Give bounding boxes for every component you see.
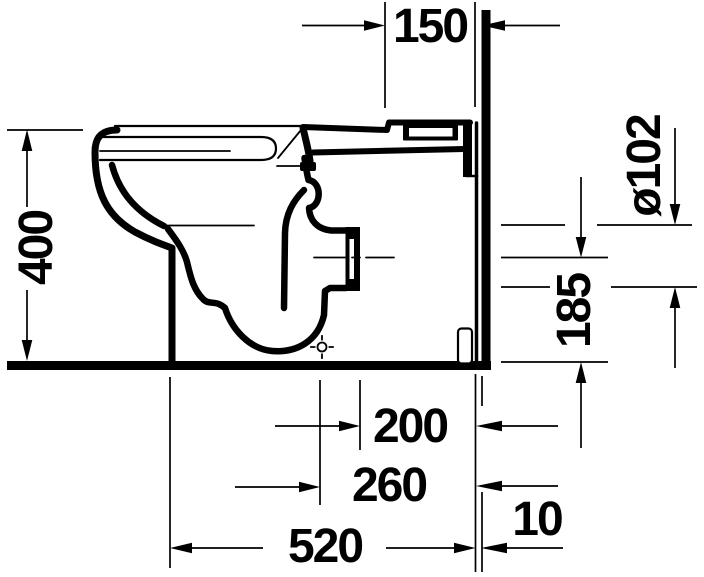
- outer-front-shell: [95, 130, 172, 361]
- seat-back-edge: [278, 130, 301, 158]
- arrowhead-left: [476, 421, 502, 432]
- arrowhead-right: [299, 482, 320, 493]
- wall-foot-piece: [458, 329, 472, 364]
- arrowhead-right: [454, 543, 476, 554]
- toilet-outline: [95, 123, 477, 364]
- arrowhead-left: [481, 543, 507, 554]
- arrowhead-up: [670, 287, 681, 308]
- dim-label-400: 400: [13, 188, 61, 308]
- bowl-back-wall: [284, 190, 304, 308]
- dim-label-150: 150: [370, 3, 490, 51]
- arrowhead-down: [670, 204, 681, 225]
- arrowhead-left: [476, 481, 502, 492]
- flush-connector-slot: [409, 128, 453, 137]
- dim-label-260: 260: [329, 462, 449, 510]
- wall-section: [482, 10, 491, 366]
- wall-and-floor: [7, 10, 491, 370]
- sump-and-trap-bottom: [168, 229, 346, 351]
- dim-label-dia-102: ø102: [621, 86, 669, 246]
- seat-outline: [100, 137, 276, 160]
- arrowhead-down: [22, 340, 33, 361]
- outlet-spigot-slot: [350, 239, 355, 279]
- dim-label-10: 10: [477, 496, 597, 544]
- arrowhead-left: [170, 543, 192, 554]
- dim-label-520: 520: [265, 523, 385, 571]
- inner-ledge: [313, 149, 464, 153]
- technical-drawing-canvas: 150 400 ø102 185 200 260 520 10: [0, 0, 704, 577]
- floor-section: [7, 361, 491, 370]
- dim-label-185: 185: [551, 251, 599, 371]
- arrowhead-up: [22, 130, 33, 152]
- dim-label-200: 200: [350, 403, 470, 451]
